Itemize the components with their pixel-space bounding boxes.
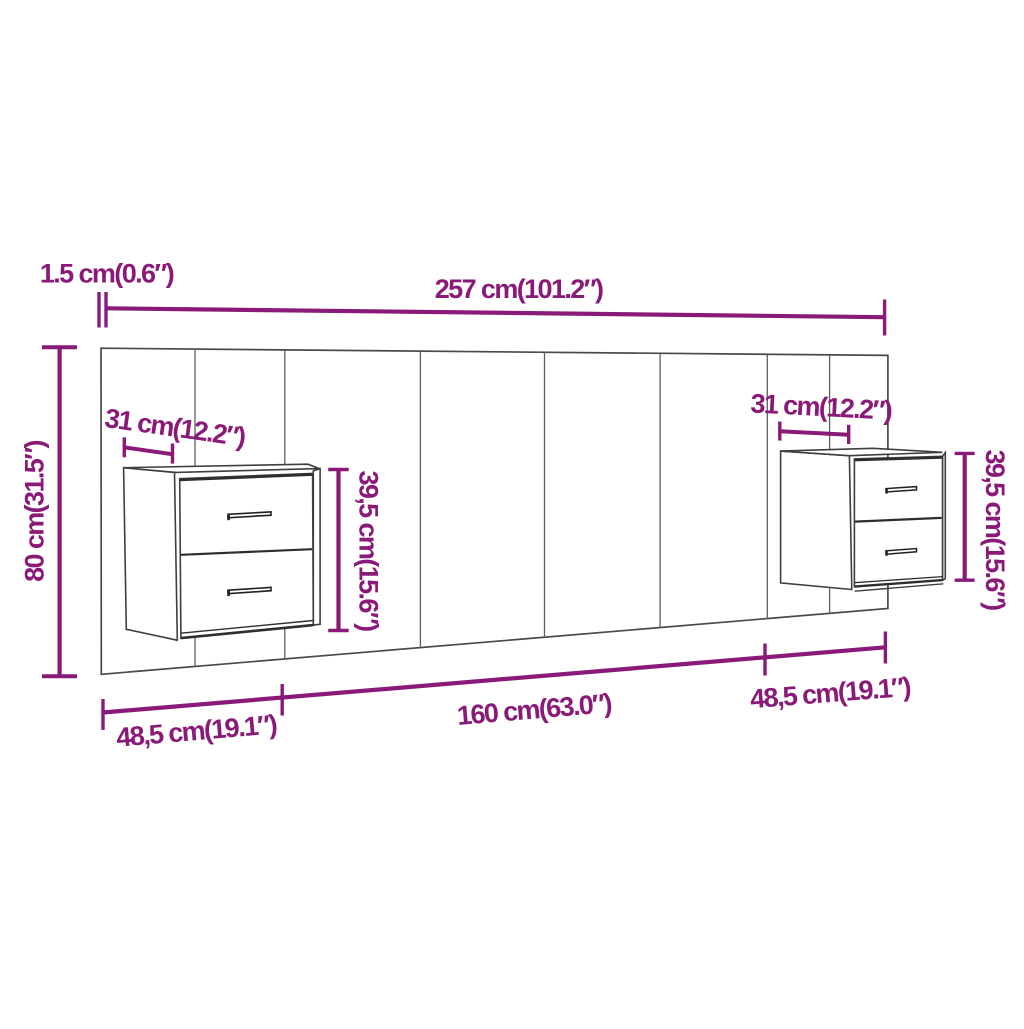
svg-text:1.5 cm(0.6″): 1.5 cm(0.6″) bbox=[40, 259, 174, 289]
svg-text:39,5 cm(15.6″): 39,5 cm(15.6″) bbox=[980, 449, 1010, 610]
svg-text:257 cm(101.2″): 257 cm(101.2″) bbox=[435, 274, 603, 304]
svg-text:39,5 cm(15.6″): 39,5 cm(15.6″) bbox=[354, 470, 384, 631]
svg-text:80 cm(31.5″): 80 cm(31.5″) bbox=[20, 440, 50, 581]
